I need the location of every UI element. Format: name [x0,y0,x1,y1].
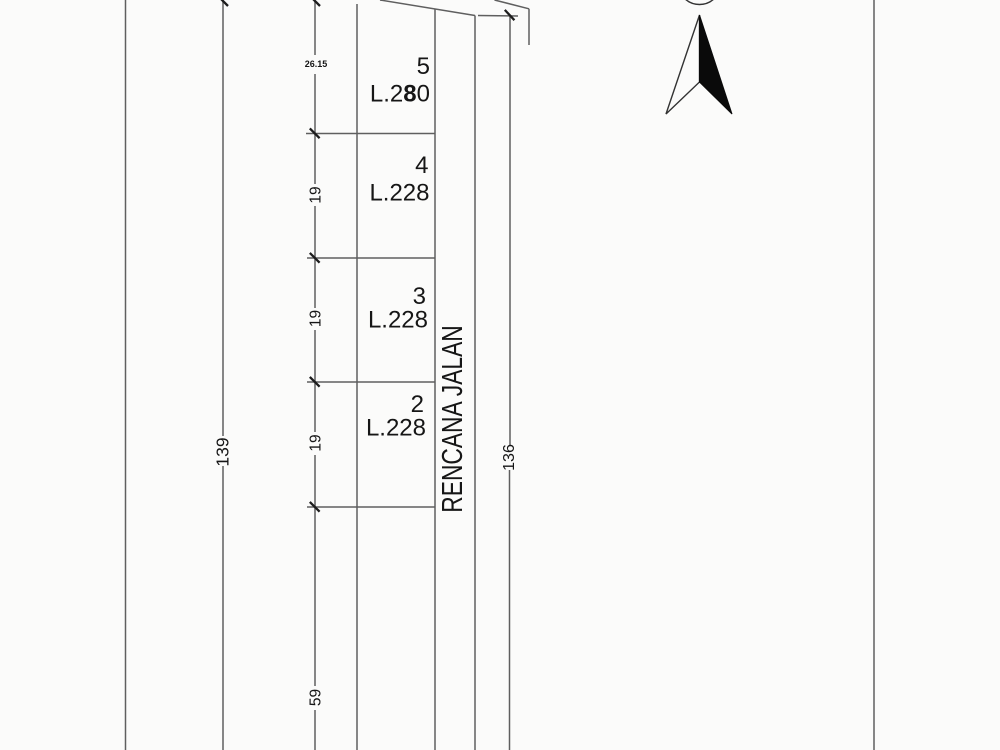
svg-text:59: 59 [308,689,325,706]
svg-text:5: 5 [417,53,430,80]
svg-text:19: 19 [308,434,325,451]
svg-text:L.280: L.280 [370,81,430,108]
svg-text:L.228: L.228 [368,307,428,334]
svg-text:19: 19 [308,186,325,203]
svg-text:4: 4 [415,152,428,179]
svg-text:136: 136 [501,444,518,471]
svg-text:L.228: L.228 [369,180,429,207]
svg-text:L.228: L.228 [366,415,426,442]
svg-text:19: 19 [308,310,325,327]
svg-text:139: 139 [213,437,233,466]
svg-text:RENCANA JALAN: RENCANA JALAN [438,325,469,512]
svg-text:26.15: 26.15 [305,59,328,69]
